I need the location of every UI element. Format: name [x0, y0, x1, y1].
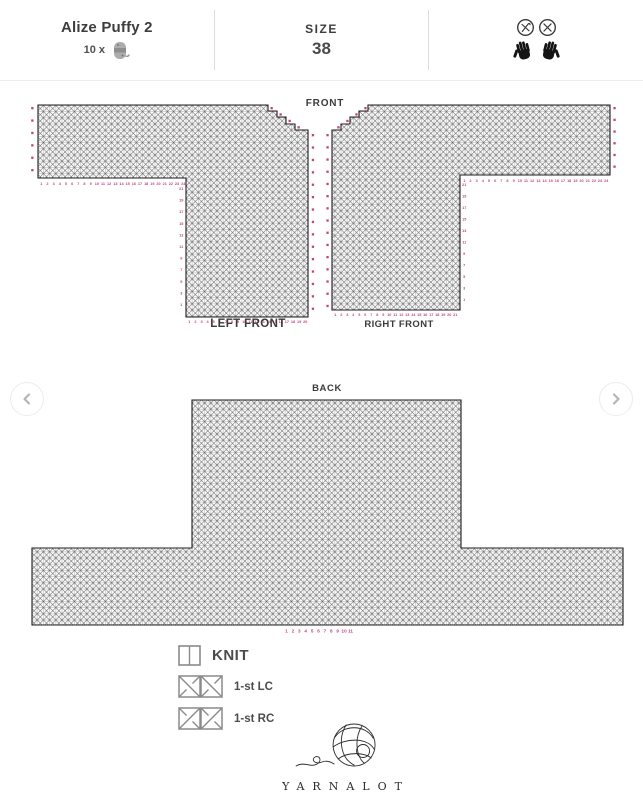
svg-text:7: 7 [324, 629, 327, 634]
left-cross-symbol [178, 675, 223, 698]
svg-text:7: 7 [77, 182, 79, 186]
svg-text:19: 19 [441, 313, 445, 317]
svg-text:11: 11 [179, 245, 183, 249]
svg-text:6: 6 [317, 629, 320, 634]
svg-text:7: 7 [370, 313, 372, 317]
svg-text:1: 1 [188, 320, 190, 324]
svg-text:10: 10 [387, 313, 391, 317]
svg-text:7: 7 [500, 179, 502, 183]
front-chart-title: FRONT [306, 98, 344, 109]
svg-text:18: 18 [291, 320, 295, 324]
svg-text:13: 13 [405, 313, 409, 317]
svg-text:8: 8 [376, 313, 378, 317]
svg-text:3: 3 [463, 287, 465, 291]
svg-text:18: 18 [567, 179, 571, 183]
right-front-chart [332, 105, 610, 310]
svg-text:13: 13 [179, 233, 183, 237]
svg-text:2: 2 [340, 313, 342, 317]
svg-text:3: 3 [346, 313, 348, 317]
svg-text:5: 5 [488, 179, 490, 183]
right-cross-symbol [178, 707, 223, 730]
svg-text:12: 12 [399, 313, 403, 317]
right-front-label: RIGHT FRONT [364, 319, 433, 330]
svg-text:11: 11 [348, 629, 353, 634]
svg-text:18: 18 [144, 182, 148, 186]
pattern-page: Alize Puffy 2 10 x SIZE 38 [0, 0, 643, 800]
svg-text:15: 15 [179, 222, 183, 226]
stitch-legend: KNIT 1-st LC 1-st RC [178, 645, 274, 730]
svg-text:21: 21 [179, 187, 183, 191]
svg-text:11: 11 [524, 179, 528, 183]
brand-footer: YARNALOT [274, 718, 410, 793]
chevron-left-icon [20, 392, 34, 406]
svg-text:11: 11 [462, 241, 466, 245]
knit-symbol [178, 645, 201, 666]
left-front-label: LEFT FRONT [210, 318, 286, 330]
svg-text:11: 11 [101, 182, 105, 186]
svg-text:1: 1 [334, 313, 336, 317]
svg-text:24: 24 [181, 182, 186, 186]
svg-text:12: 12 [107, 182, 111, 186]
chevron-right-icon [609, 392, 623, 406]
svg-text:20: 20 [579, 179, 583, 183]
svg-text:20: 20 [447, 313, 451, 317]
svg-text:3: 3 [298, 629, 301, 634]
svg-text:9: 9 [90, 182, 92, 186]
svg-text:6: 6 [364, 313, 366, 317]
svg-text:15: 15 [462, 218, 466, 222]
svg-text:2: 2 [292, 629, 295, 634]
legend-row-rc: 1-st RC [178, 707, 274, 730]
svg-text:13: 13 [113, 182, 117, 186]
svg-text:21: 21 [586, 179, 590, 183]
svg-text:9: 9 [382, 313, 384, 317]
svg-text:17: 17 [561, 179, 565, 183]
svg-text:3: 3 [53, 182, 55, 186]
svg-text:6: 6 [494, 179, 496, 183]
svg-text:5: 5 [358, 313, 360, 317]
svg-text:17: 17 [462, 206, 466, 210]
legend-label: 1-st LC [234, 681, 273, 693]
svg-text:10: 10 [342, 629, 348, 634]
svg-text:3: 3 [476, 179, 478, 183]
svg-text:20: 20 [156, 182, 160, 186]
svg-text:13: 13 [536, 179, 540, 183]
svg-text:3: 3 [180, 291, 182, 295]
left-front-chart [38, 105, 308, 317]
svg-text:15: 15 [126, 182, 130, 186]
svg-text:1: 1 [463, 298, 465, 302]
svg-text:17: 17 [179, 210, 183, 214]
svg-text:1: 1 [285, 629, 288, 634]
svg-text:22: 22 [592, 179, 596, 183]
svg-text:17: 17 [429, 313, 433, 317]
svg-text:2: 2 [46, 182, 48, 186]
svg-text:19: 19 [297, 320, 301, 324]
svg-text:15: 15 [549, 179, 553, 183]
svg-text:21: 21 [462, 183, 466, 187]
yarn-ball-logo [294, 718, 390, 778]
svg-text:2: 2 [469, 179, 471, 183]
svg-text:14: 14 [119, 182, 124, 186]
svg-text:14: 14 [411, 313, 416, 317]
svg-text:19: 19 [462, 195, 466, 199]
svg-text:12: 12 [530, 179, 534, 183]
svg-text:9: 9 [336, 629, 339, 634]
svg-text:21: 21 [163, 182, 167, 186]
svg-text:4: 4 [304, 629, 307, 634]
svg-text:18: 18 [435, 313, 439, 317]
svg-text:8: 8 [83, 182, 85, 186]
svg-text:23: 23 [598, 179, 602, 183]
svg-text:22: 22 [169, 182, 173, 186]
svg-text:20: 20 [303, 320, 307, 324]
carousel-next-button[interactable] [599, 382, 633, 416]
svg-text:5: 5 [65, 182, 67, 186]
svg-text:4: 4 [352, 313, 355, 317]
legend-label: 1-st RC [234, 713, 274, 725]
svg-text:8: 8 [506, 179, 508, 183]
svg-text:10: 10 [95, 182, 99, 186]
svg-text:4: 4 [482, 179, 485, 183]
legend-row-lc: 1-st LC [178, 675, 274, 698]
svg-text:5: 5 [311, 629, 314, 634]
svg-text:16: 16 [423, 313, 427, 317]
svg-text:9: 9 [180, 257, 182, 261]
back-chart [32, 400, 623, 625]
svg-text:7: 7 [180, 268, 182, 272]
svg-text:9: 9 [513, 179, 515, 183]
carousel-prev-button[interactable] [10, 382, 44, 416]
svg-text:21: 21 [453, 313, 457, 317]
svg-text:16: 16 [555, 179, 559, 183]
svg-text:24: 24 [604, 179, 609, 183]
svg-text:23: 23 [175, 182, 179, 186]
svg-text:4: 4 [207, 320, 210, 324]
svg-text:6: 6 [71, 182, 73, 186]
svg-text:10: 10 [518, 179, 522, 183]
svg-text:1: 1 [40, 182, 42, 186]
svg-text:16: 16 [132, 182, 136, 186]
legend-label: KNIT [212, 647, 249, 664]
svg-text:19: 19 [179, 199, 183, 203]
legend-row-knit: KNIT [178, 645, 274, 666]
svg-text:17: 17 [138, 182, 142, 186]
svg-text:15: 15 [417, 313, 421, 317]
svg-text:5: 5 [463, 275, 465, 279]
svg-text:9: 9 [463, 252, 465, 256]
svg-text:2: 2 [194, 320, 196, 324]
svg-text:14: 14 [542, 179, 547, 183]
svg-text:19: 19 [573, 179, 577, 183]
svg-text:19: 19 [150, 182, 154, 186]
svg-text:7: 7 [463, 264, 465, 268]
svg-text:11: 11 [393, 313, 397, 317]
svg-text:4: 4 [59, 182, 62, 186]
svg-text:3: 3 [200, 320, 202, 324]
knitting-charts-canvas: 1234567891011121314151617181920212223242… [0, 0, 643, 800]
svg-text:8: 8 [330, 629, 333, 634]
brand-name: YARNALOT [274, 780, 410, 793]
svg-text:13: 13 [462, 229, 466, 233]
svg-text:1: 1 [180, 303, 182, 307]
back-chart-title: BACK [312, 383, 342, 394]
svg-text:5: 5 [180, 280, 182, 284]
